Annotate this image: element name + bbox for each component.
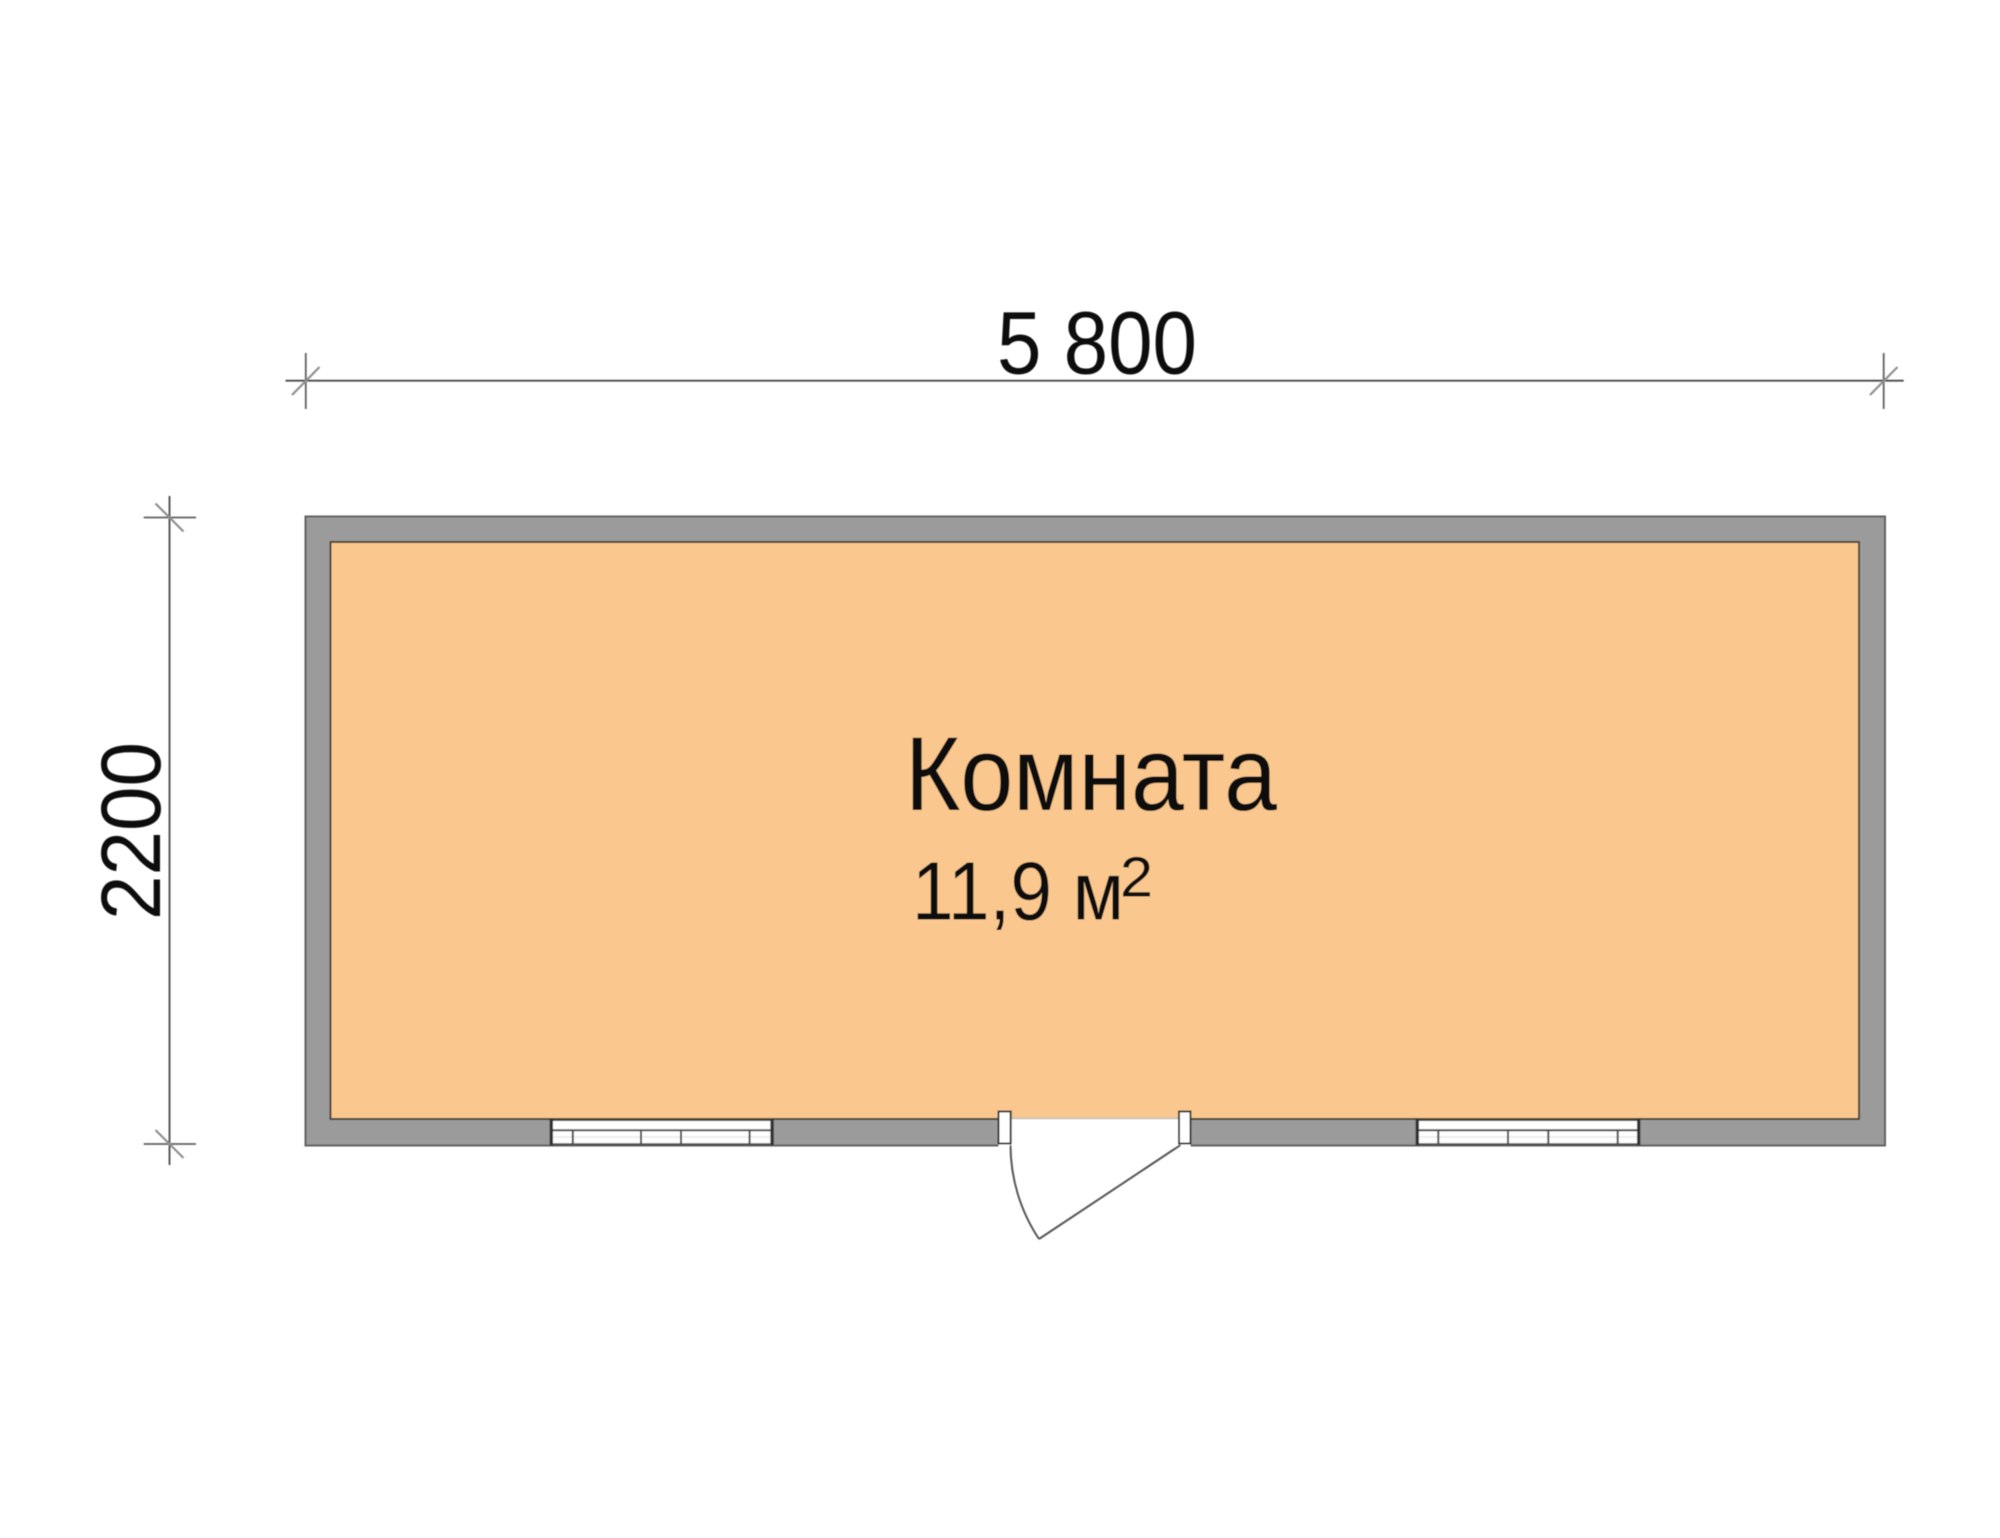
- svg-text:5 800: 5 800: [997, 293, 1197, 393]
- svg-text:11,9 м: 11,9 м: [912, 845, 1124, 938]
- svg-text:Комната: Комната: [905, 716, 1278, 833]
- svg-text:2200: 2200: [84, 742, 178, 920]
- svg-text:2: 2: [1120, 846, 1153, 910]
